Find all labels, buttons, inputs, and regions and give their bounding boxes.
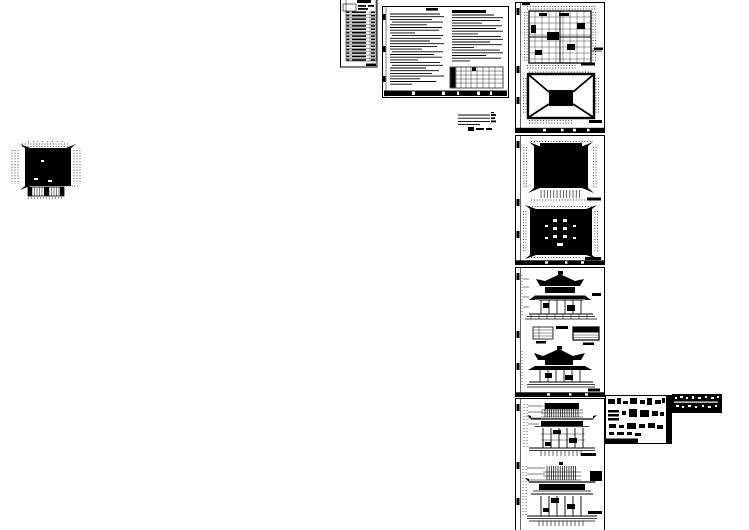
- sheet-titlebar: [516, 392, 604, 396]
- legend-symbol-mark: [468, 127, 474, 131]
- sheet-titlebar: [516, 128, 604, 132]
- elevations: [515, 267, 605, 397]
- details: [605, 395, 673, 444]
- details-sheet: [605, 395, 673, 444]
- plan-sheet: [515, 2, 605, 133]
- sheet-label-mark: [366, 64, 376, 67]
- floor-plan: [525, 7, 604, 69]
- notes-left-column-text: [390, 14, 444, 84]
- front-elevation: [522, 271, 601, 329]
- roof-plans: [515, 135, 605, 265]
- notes-title-mark: [426, 8, 438, 11]
- cad-drawing-canvas: [0, 0, 749, 530]
- notes-material-table: [450, 67, 503, 88]
- detached-plan: [8, 140, 88, 200]
- cross-section-2: [523, 462, 602, 526]
- side-elevation-caption: [588, 389, 600, 392]
- section-2-caption: [588, 511, 602, 514]
- notes-titlebar: [384, 91, 507, 97]
- roof-plan-caption: [589, 120, 602, 123]
- front-elevation-caption: [556, 326, 568, 329]
- section-2-side-label: [590, 471, 602, 481]
- detail-box-right: [573, 327, 599, 345]
- details-bottom-bar: [606, 439, 638, 444]
- cross-section-1: [524, 403, 597, 456]
- sections-sheet: [515, 398, 605, 530]
- legend: [456, 112, 500, 134]
- sections: [515, 398, 605, 530]
- entry-steps: [28, 187, 64, 196]
- section-1-caption: [581, 453, 596, 456]
- drawing-index-table: [340, 0, 378, 71]
- detail-fragments: [608, 398, 665, 436]
- notes-right-column-text: [452, 15, 503, 61]
- lower-roof-plan: [524, 205, 602, 260]
- plan-leader-label: [594, 48, 603, 51]
- floor-roof-plan-sheet: [515, 2, 605, 133]
- legend-block: [456, 112, 500, 134]
- sheet-titlebar: [516, 260, 604, 264]
- upper-roof-plan: [524, 142, 601, 201]
- sheet-number-mark: [522, 3, 530, 5]
- text-block: [672, 394, 722, 413]
- roof-framing-plan: [524, 72, 603, 123]
- design-notes-sheet: [382, 6, 509, 98]
- elevation-side-label: [592, 293, 601, 296]
- detached-floor-plan: [8, 140, 88, 200]
- elevations-sheet: [515, 267, 605, 397]
- lower-roof-caption: [585, 257, 601, 260]
- design-notes: [382, 6, 509, 98]
- drawing-index-sheet: [340, 0, 378, 71]
- detail-box-left: [533, 327, 553, 344]
- details-right-bar: [666, 396, 672, 443]
- upper-roof-caption: [587, 198, 601, 201]
- annotation-text-block: [672, 394, 722, 413]
- notes-right-heading-bar: [452, 10, 486, 13]
- floor-plan-caption: [581, 63, 595, 66]
- roof-plans-sheet: [515, 135, 605, 265]
- side-elevation: [522, 346, 600, 392]
